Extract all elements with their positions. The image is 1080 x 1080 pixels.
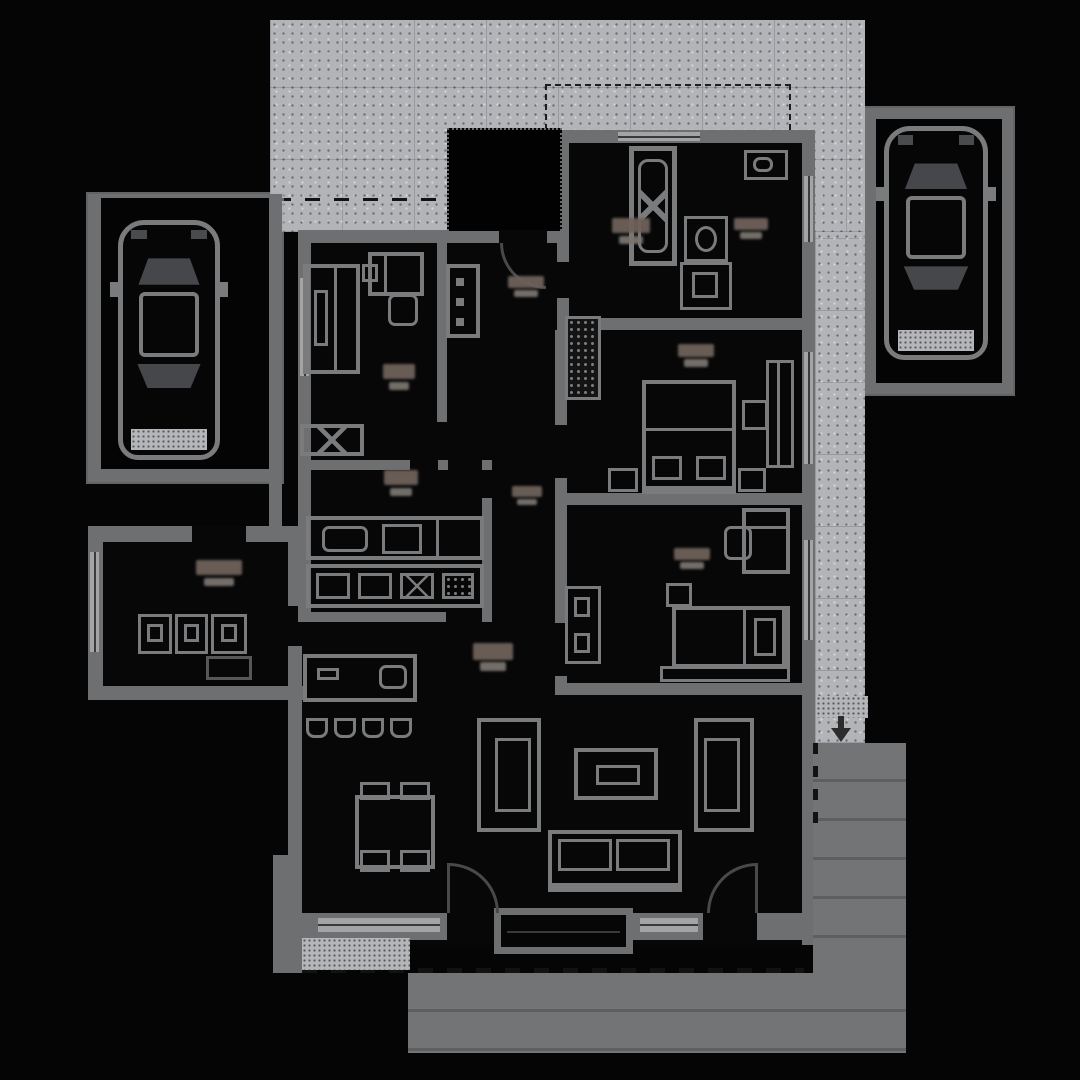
driveway-paving-right <box>815 232 865 743</box>
window-bed2-east <box>804 352 813 464</box>
table-tray <box>596 765 640 785</box>
hook <box>456 318 464 326</box>
wing-wall-bottom <box>88 686 304 700</box>
kitchen-sink <box>322 526 368 552</box>
bar-stool <box>306 718 328 738</box>
door-leaf-right <box>755 863 758 913</box>
wardrobe-compartment <box>574 597 590 617</box>
mirror-right <box>988 187 996 201</box>
pillow <box>696 456 726 480</box>
drum <box>184 624 199 642</box>
window-bath-east <box>804 176 813 242</box>
coat-closet <box>446 264 480 338</box>
desk-chair-bed3 <box>724 526 752 560</box>
bar-stool <box>362 718 384 738</box>
kitchen-cabinet-row <box>306 564 484 608</box>
rear-window <box>904 266 969 289</box>
dining-chair <box>360 850 390 872</box>
bed-1 <box>303 264 360 374</box>
door-opening-south-right <box>703 913 757 940</box>
door-leaf-left <box>447 863 450 913</box>
headlight-right <box>191 230 206 240</box>
blanket-line <box>334 268 337 370</box>
dryer-unit <box>175 614 208 654</box>
headlight-left <box>131 230 146 240</box>
lounge-chair-right <box>694 718 754 832</box>
hook <box>456 278 464 286</box>
window-wing-west <box>90 552 99 652</box>
doormat <box>206 656 252 680</box>
cooktop <box>382 524 422 554</box>
desk-bed1 <box>368 252 424 296</box>
room-label-living <box>473 643 513 673</box>
window-south-1 <box>318 918 440 932</box>
bar-stool <box>390 718 412 738</box>
shower <box>680 262 732 310</box>
room-label-wc <box>734 218 768 240</box>
deck-terrace-right <box>813 743 906 973</box>
drum <box>147 624 163 642</box>
floor-plan <box>0 0 1080 1080</box>
room-label-bedroom3 <box>674 548 710 570</box>
dresser-bed1 <box>300 424 364 456</box>
wall-sw-pier <box>273 855 290 973</box>
pillow <box>754 618 776 656</box>
pillow <box>314 290 328 346</box>
sofa-cushion <box>558 839 612 871</box>
nightstand <box>666 583 692 607</box>
hook <box>456 298 464 306</box>
dining-chair <box>360 782 390 800</box>
island-item <box>317 668 339 680</box>
dining-chair <box>400 782 430 800</box>
nightstand <box>608 468 638 492</box>
carport-roof-dashline <box>276 198 446 201</box>
window-bay-glass-line <box>507 931 620 933</box>
blanket-line <box>646 428 732 431</box>
cabinet-unit <box>358 573 392 599</box>
shower-tray <box>692 272 718 298</box>
entry-door-opening <box>499 230 547 243</box>
car-roof <box>906 196 966 259</box>
mirror-left <box>110 282 118 296</box>
door-opening-south-left <box>447 913 499 940</box>
appliance-unit <box>442 573 474 599</box>
pillow <box>652 456 682 480</box>
roof-overhang-outline <box>545 84 791 130</box>
window-bay-south <box>494 908 633 954</box>
wardrobe-bed3 <box>565 586 601 664</box>
headlight-left <box>898 135 914 144</box>
room-label-bathroom <box>612 218 650 246</box>
desk-shelf-line <box>746 526 786 529</box>
toilet <box>684 216 728 262</box>
bathtub <box>629 146 677 266</box>
coffee-table <box>574 748 658 800</box>
wardrobe-door-line <box>777 363 780 465</box>
deck-terrace-bottom <box>408 973 906 1053</box>
washbasin-vanity <box>744 150 788 180</box>
rear-window <box>137 364 200 388</box>
service-shaft <box>565 316 601 400</box>
island-sink <box>379 665 407 689</box>
bar-stool <box>334 718 356 738</box>
entry-steps-patch-east <box>816 696 868 718</box>
kitchen-island <box>303 654 417 702</box>
room-label-hall <box>508 276 544 298</box>
desk-shelf-line <box>384 256 387 292</box>
wall-kitchen-east-a <box>482 460 492 470</box>
wall-corridor-east-c <box>555 676 567 695</box>
wardrobe-bed2 <box>766 360 794 468</box>
car-right <box>884 126 988 360</box>
room-label-utility <box>196 560 242 588</box>
wing-wall-top-a <box>88 526 192 542</box>
sideboard-bed3 <box>660 666 790 682</box>
headlight-right <box>959 135 975 144</box>
seat-cushion <box>704 738 740 812</box>
room-label-bedroom2 <box>678 344 714 368</box>
entry-porch <box>447 128 562 231</box>
carport-wall-extension <box>269 468 282 530</box>
utility-cabinet <box>211 614 247 654</box>
car-left <box>118 220 220 460</box>
sofa-cushion <box>616 839 670 871</box>
wall-kitchen-south <box>298 612 446 622</box>
room-label-kitchen <box>384 470 418 498</box>
seat-cushion <box>495 738 531 812</box>
wing-wall-right-a <box>288 526 302 606</box>
wall-bed1-south-b <box>438 460 448 470</box>
car-trunk <box>131 429 207 451</box>
window-south-2 <box>640 918 698 932</box>
utility-wing-interior <box>90 526 302 700</box>
entry-steps-patch-south <box>302 938 410 970</box>
kitchen-counter-upper <box>306 516 484 560</box>
toilet-bowl <box>695 226 717 252</box>
drum <box>221 624 237 642</box>
room-label-bedroom1 <box>383 364 415 392</box>
dishwasher <box>400 573 434 599</box>
washer-unit <box>138 614 172 654</box>
window-bed3-east <box>804 540 813 640</box>
desk-chair-bed1 <box>388 294 418 326</box>
wardrobe-handle-unit <box>742 400 768 430</box>
mirror-left <box>876 187 884 201</box>
wall-bed3-south <box>567 683 802 695</box>
dining-chair <box>400 850 430 872</box>
lounge-chair-left <box>477 718 541 832</box>
bed-2 <box>642 380 736 494</box>
car-trunk <box>898 330 975 351</box>
cabinet-unit <box>316 573 350 599</box>
mirror-right <box>220 282 228 296</box>
wall-bed2-south <box>567 493 802 505</box>
room-label-corridor <box>512 486 542 506</box>
blanket-line <box>743 610 746 664</box>
counter-divider <box>436 520 439 556</box>
sofa <box>548 830 682 892</box>
deck-edge-dashes <box>813 743 818 827</box>
stairs-arrow-head <box>831 728 851 742</box>
bed-3 <box>672 606 790 668</box>
basin <box>753 157 773 172</box>
wardrobe-compartment <box>574 633 590 653</box>
wall-bed1-south-a <box>298 460 410 470</box>
window-bath-north <box>618 132 700 141</box>
car-roof <box>139 292 198 357</box>
nightstand <box>738 468 766 492</box>
